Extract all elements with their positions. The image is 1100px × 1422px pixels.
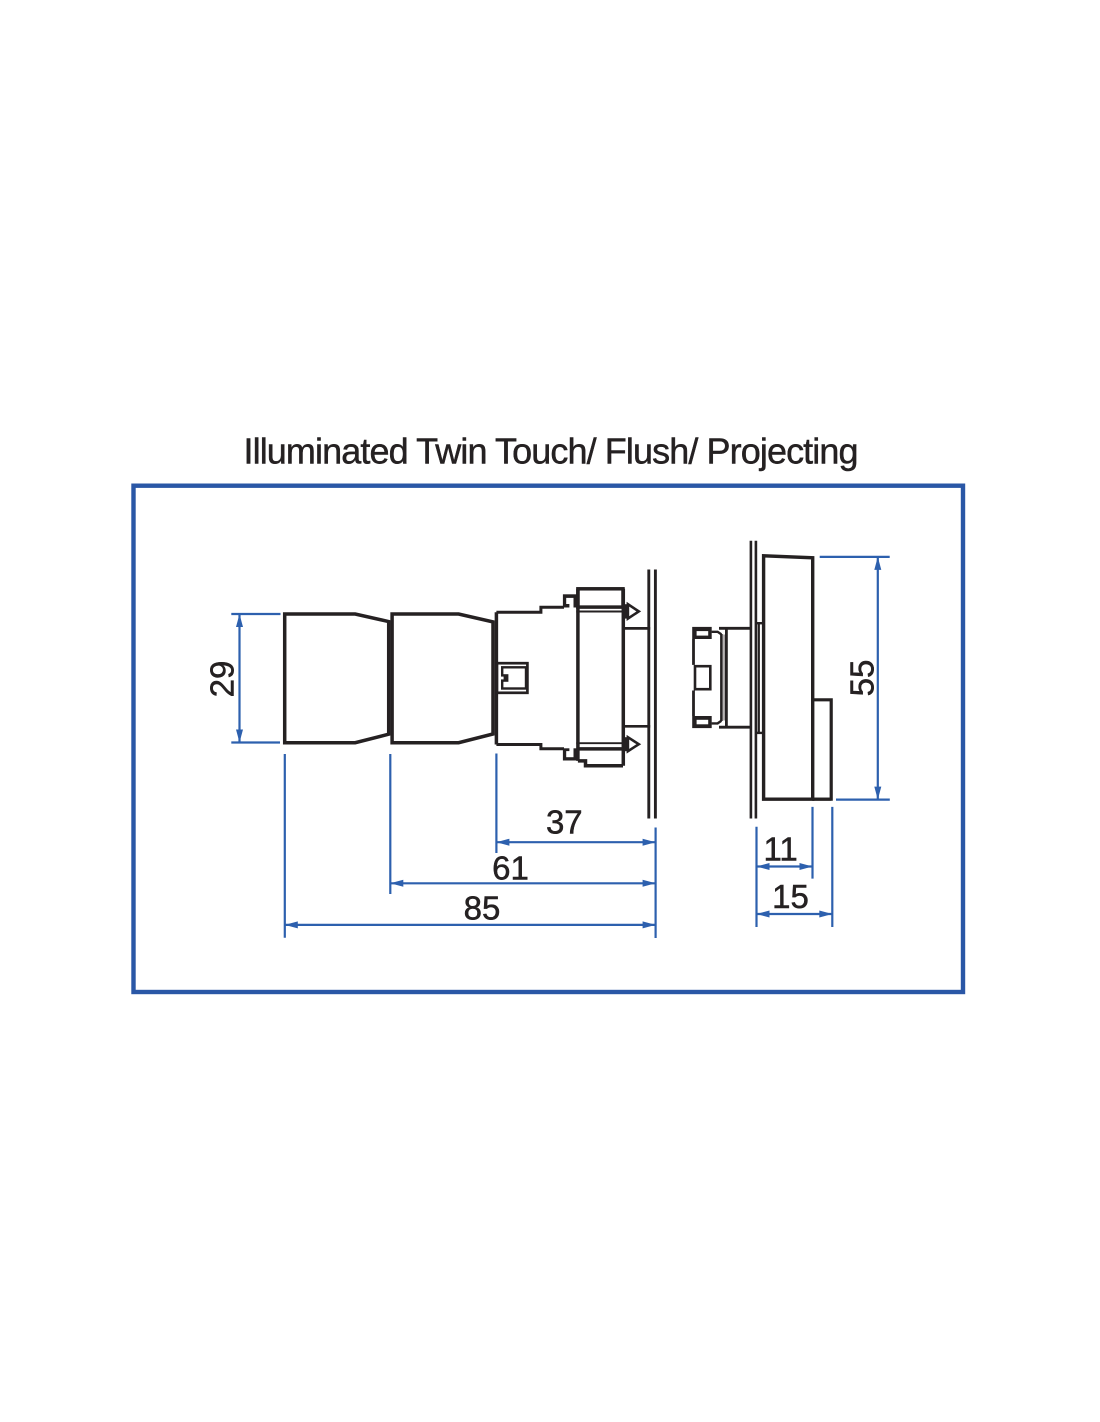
svg-text:85: 85 xyxy=(464,890,501,927)
svg-text:11: 11 xyxy=(763,831,797,868)
svg-text:15: 15 xyxy=(772,878,809,915)
svg-text:55: 55 xyxy=(843,660,880,697)
svg-text:29: 29 xyxy=(204,661,241,698)
svg-text:61: 61 xyxy=(492,850,529,887)
svg-text:Illuminated Twin Touch/ Flush/: Illuminated Twin Touch/ Flush/ Projectin… xyxy=(244,431,858,472)
svg-text:37: 37 xyxy=(546,804,583,841)
